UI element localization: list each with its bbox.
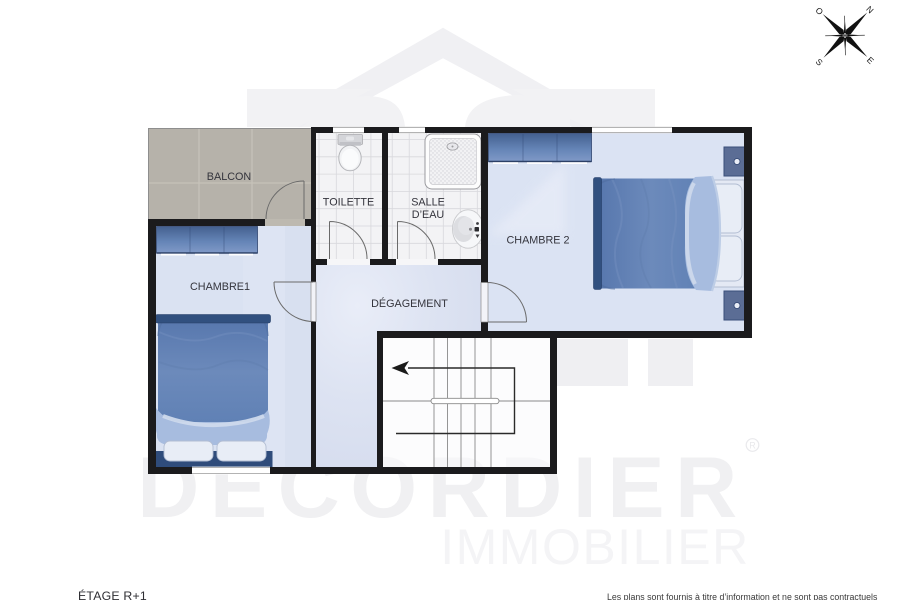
svg-text:DÉGAGEMENT: DÉGAGEMENT: [371, 297, 448, 310]
svg-text:ÉTAGE R+1: ÉTAGE R+1: [78, 588, 147, 600]
svg-text:IMMOBILIER: IMMOBILIER: [440, 519, 749, 575]
svg-text:BALCON: BALCON: [207, 171, 251, 183]
svg-text:SALLE: SALLE: [411, 197, 445, 209]
svg-text:Les plans sont fournis à titre: Les plans sont fournis à titre d’informa…: [607, 592, 878, 600]
svg-text:R: R: [749, 441, 756, 451]
svg-text:D’EAU: D’EAU: [412, 209, 444, 221]
svg-text:CHAMBRE1: CHAMBRE1: [190, 281, 250, 293]
svg-text:TOILETTE: TOILETTE: [323, 197, 374, 209]
svg-text:CHAMBRE 2: CHAMBRE 2: [507, 235, 570, 247]
